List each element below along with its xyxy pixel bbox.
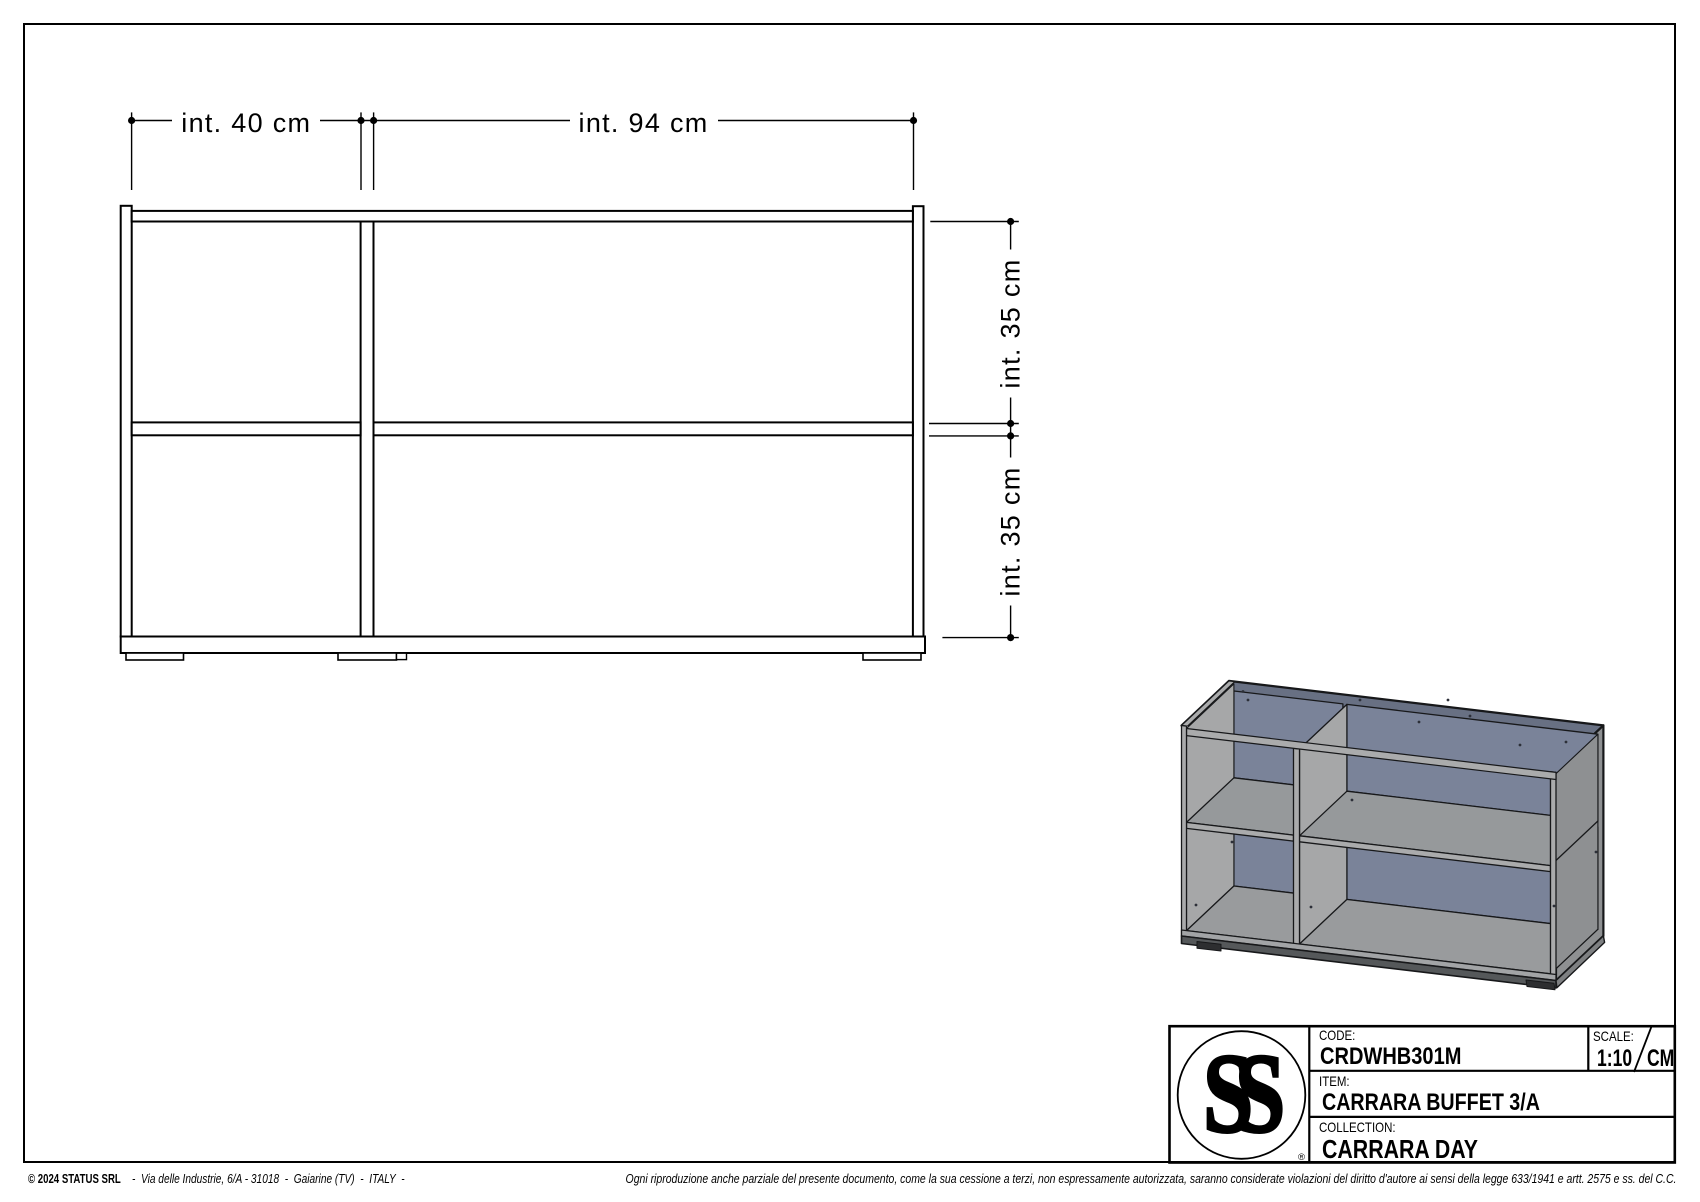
svg-text:S: S: [1235, 1032, 1285, 1157]
svg-text:®: ®: [1298, 1152, 1305, 1163]
